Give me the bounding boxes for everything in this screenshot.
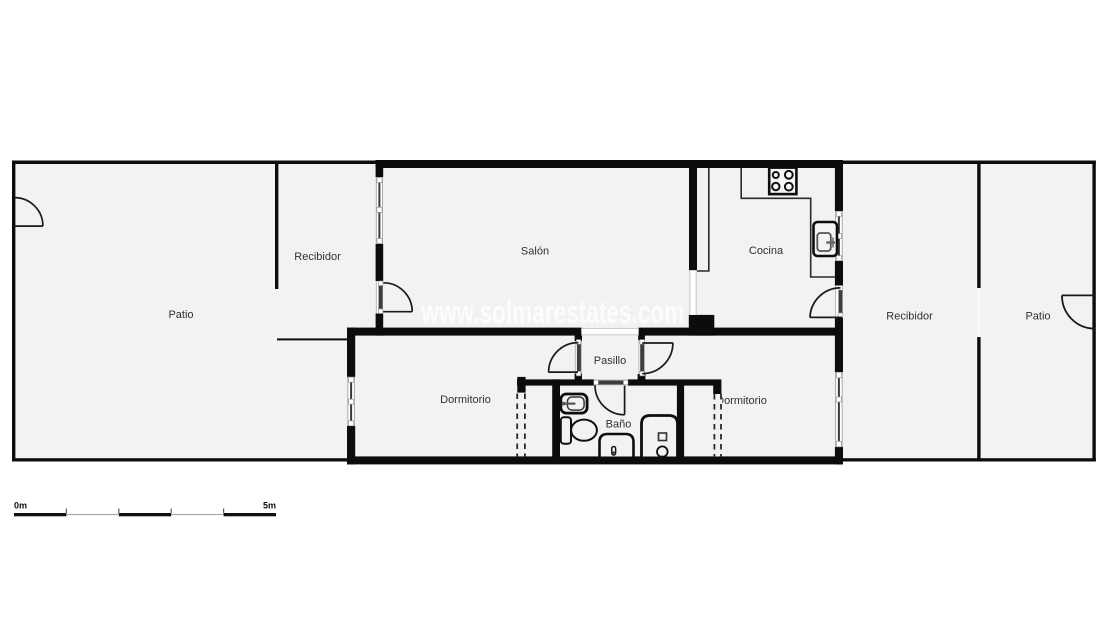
svg-text:Dormitorio: Dormitorio <box>440 394 491 406</box>
svg-text:Patio: Patio <box>1025 311 1050 323</box>
svg-text:Cocina: Cocina <box>749 245 784 257</box>
svg-text:Recibidor: Recibidor <box>886 311 933 323</box>
svg-text:5m: 5m <box>263 501 276 511</box>
svg-text:www.solmarestates.com: www.solmarestates.com <box>421 294 685 330</box>
svg-text:Recibidor: Recibidor <box>294 251 341 263</box>
svg-text:Pasillo: Pasillo <box>594 355 626 367</box>
svg-text:Salón: Salón <box>521 246 549 258</box>
svg-text:0m: 0m <box>14 501 27 511</box>
svg-text:Dormitorio: Dormitorio <box>716 395 767 407</box>
svg-text:Baño: Baño <box>606 419 632 431</box>
svg-text:Patio: Patio <box>168 309 193 321</box>
